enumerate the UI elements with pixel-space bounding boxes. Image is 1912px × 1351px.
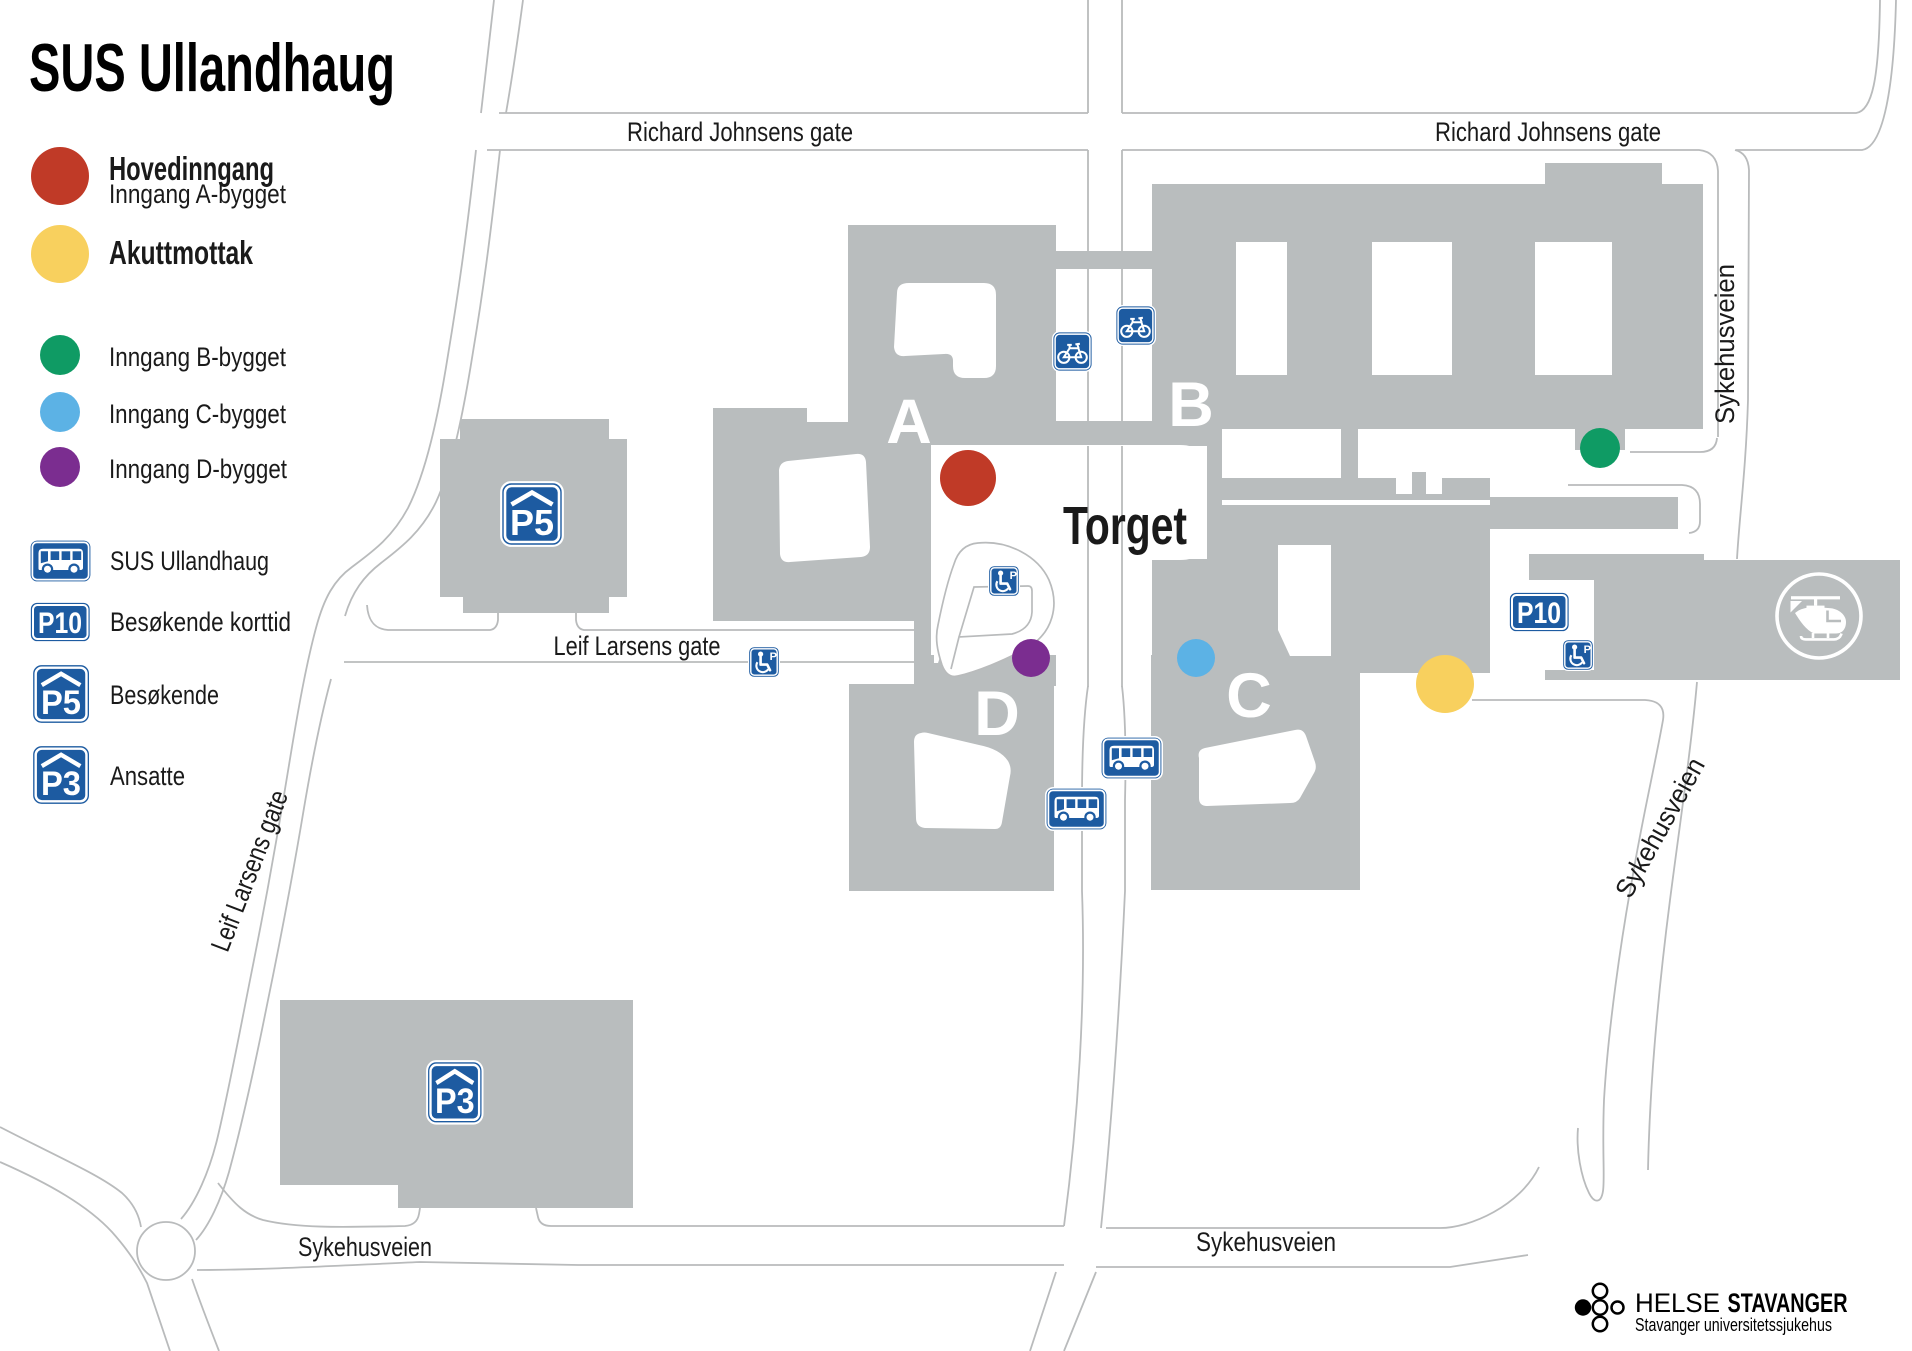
svg-text:C: C [1226,661,1272,731]
svg-text:Sykehusveien: Sykehusveien [1196,1227,1336,1257]
svg-text:P3: P3 [435,1082,475,1122]
svg-text:P5: P5 [41,684,81,722]
svg-text:P10: P10 [38,607,82,640]
svg-text:Stavanger universitetssjukehus: Stavanger universitetssjukehus [1635,1315,1832,1335]
svg-text:Richard Johnsens gate: Richard Johnsens gate [1435,117,1661,147]
svg-text:Besøkende: Besøkende [110,680,219,710]
svg-text:HELSE STAVANGER: HELSE STAVANGER [1635,1288,1848,1318]
svg-text:SUS Ullandhaug: SUS Ullandhaug [29,30,395,106]
svg-text:B: B [1168,370,1214,440]
svg-text:Inngang C-bygget: Inngang C-bygget [109,399,286,429]
svg-text:Torget: Torget [1063,496,1187,556]
svg-text:P3: P3 [41,765,81,803]
svg-text:Besøkende korttid: Besøkende korttid [110,607,291,637]
svg-text:Sykehusveien: Sykehusveien [1710,264,1740,424]
svg-text:Leif Larsens gate: Leif Larsens gate [554,631,721,661]
svg-text:Sykehusveien: Sykehusveien [298,1232,432,1262]
svg-text:Richard Johnsens gate: Richard Johnsens gate [627,117,853,147]
svg-text:D: D [974,679,1020,749]
svg-text:Ansatte: Ansatte [110,761,185,791]
svg-text:P5: P5 [510,502,554,543]
svg-text:Inngang B-bygget: Inngang B-bygget [109,342,286,372]
svg-text:A: A [886,387,932,457]
svg-text:SUS Ullandhaug: SUS Ullandhaug [110,546,269,576]
svg-text:Akuttmottak: Akuttmottak [109,234,253,271]
svg-text:P10: P10 [1517,597,1561,630]
svg-text:Inngang A-bygget: Inngang A-bygget [109,179,286,209]
svg-text:Inngang D-bygget: Inngang D-bygget [109,454,287,484]
